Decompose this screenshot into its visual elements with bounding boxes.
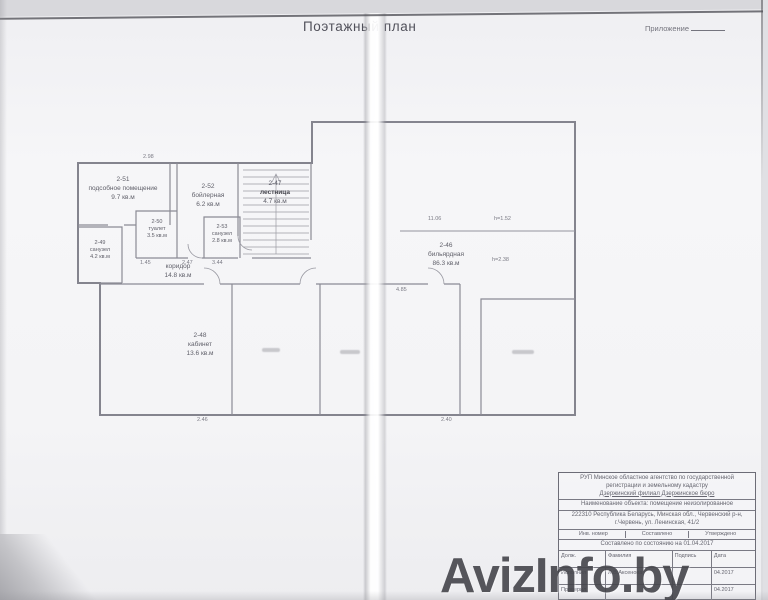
stamp-cell: Дата	[712, 551, 755, 568]
room-area: 13.6 кв.м	[174, 350, 226, 359]
stamp-address: 222310 Республика Беларусь, Минская обл.…	[559, 511, 755, 530]
paper-left-shadow	[0, 0, 7, 600]
paper-right-margin	[763, 0, 768, 600]
watermark-text: AvizInfo.by	[440, 548, 689, 600]
stamp-org-line2: регистрации и земельному кадастру	[562, 483, 752, 491]
page-title: Поэтажный план	[303, 19, 416, 34]
stamp-inv-cell: Утверждено	[689, 531, 752, 538]
faint-label-mark	[262, 348, 280, 352]
room-number: 2-51	[88, 176, 158, 185]
stamp-object-line: Наименование объекта: помещение неизолир…	[559, 500, 755, 511]
room-number: 2-53	[205, 224, 239, 231]
stamp-org-line3: Дзержинский филиал Дзержинское бюро	[562, 491, 752, 499]
room-name: подсобное помещение	[88, 185, 158, 194]
room-area: 3.5 кв.м	[138, 233, 176, 240]
room-label-staircase: 2-47 лестница 4.7 кв.м	[247, 180, 303, 206]
room-area: 6.2 кв.м	[180, 201, 236, 210]
room-number: 2-52	[180, 183, 236, 192]
room-number: 2-48	[174, 332, 226, 341]
room-number: 2-49	[80, 240, 120, 247]
room-area: 4.7 кв.м	[247, 198, 303, 207]
room-name: коридор	[148, 263, 208, 272]
stamp-address-line2: г.Червень, ул. Ленинская, 41/2	[562, 520, 752, 528]
stamp-header: РУП Минское областное агентство по госуд…	[559, 473, 755, 500]
dimension-label: 1.45	[140, 260, 151, 266]
dimension-label: 2.46	[197, 417, 208, 423]
scanned-floor-plan-page: Поэтажный план Приложение	[0, 0, 768, 600]
room-area: 2.8 кв.м	[205, 238, 239, 245]
room-label-2-51: 2-51 подсобное помещение 9.7 кв.м	[88, 176, 158, 202]
room-name: санузел	[205, 231, 239, 238]
dimension-label: 4.85	[396, 287, 407, 293]
room-label-2-53: 2-53 санузел 2.8 кв.м	[205, 224, 239, 245]
room-number: 2-47	[247, 180, 303, 189]
room-name: лестница	[247, 189, 303, 198]
faint-label-mark	[512, 350, 534, 354]
appendix-label: Приложение	[645, 23, 725, 33]
stamp-inv-cell: Составлено	[626, 531, 690, 538]
room-label-2-48: 2-48 кабинет 13.6 кв.м	[174, 332, 226, 358]
dimension-label: 11.06	[428, 216, 441, 222]
room-label-2-52: 2-52 бойлерная 6.2 кв.м	[180, 183, 236, 209]
dimension-label: 2.40	[441, 417, 452, 423]
height-label: h=1.52	[494, 216, 511, 222]
paper-fold-stripe	[363, 0, 387, 600]
room-name: бойлерная	[180, 192, 236, 201]
room-number: 2-46	[408, 242, 484, 251]
room-name: санузел	[80, 247, 120, 254]
appendix-blank-line	[691, 23, 725, 31]
stamp-inv-cell: Инв. номер	[562, 531, 626, 538]
dimension-label: 3.44	[212, 260, 223, 266]
stamp-address-line1: 222310 Республика Беларусь, Минская обл.…	[562, 512, 752, 520]
dimension-label: 2.98	[143, 154, 154, 160]
height-label: h=2.38	[492, 257, 509, 263]
faint-label-mark	[340, 350, 360, 354]
room-area: 86.3 кв.м	[408, 260, 484, 269]
paper-right-edge	[761, 0, 763, 600]
stamp-cell: 04.2017	[712, 568, 755, 585]
room-label-corridor: коридор 14.8 кв.м	[148, 263, 208, 281]
dimension-label: 2.47	[182, 260, 193, 266]
stamp-org-line1: РУП Минское областное агентство по госуд…	[562, 475, 752, 483]
stamp-inventory-row: Инв. номер Составлено Утверждено	[559, 530, 755, 540]
room-name: бильярдная	[408, 251, 484, 260]
room-area: 4.2 кв.м	[80, 254, 120, 261]
appendix-text: Приложение	[645, 24, 689, 33]
room-name: туалет	[138, 226, 176, 233]
room-label-2-50: 2-50 туалет 3.5 кв.м	[138, 219, 176, 240]
room-label-2-46: 2-46 бильярдная 86.3 кв.м	[408, 242, 484, 268]
room-label-2-49: 2-49 санузел 4.2 кв.м	[80, 240, 120, 261]
room-number: 2-50	[138, 219, 176, 226]
room-area: 14.8 кв.м	[148, 272, 208, 281]
room-name: кабинет	[174, 341, 226, 350]
room-area: 9.7 кв.м	[88, 194, 158, 203]
